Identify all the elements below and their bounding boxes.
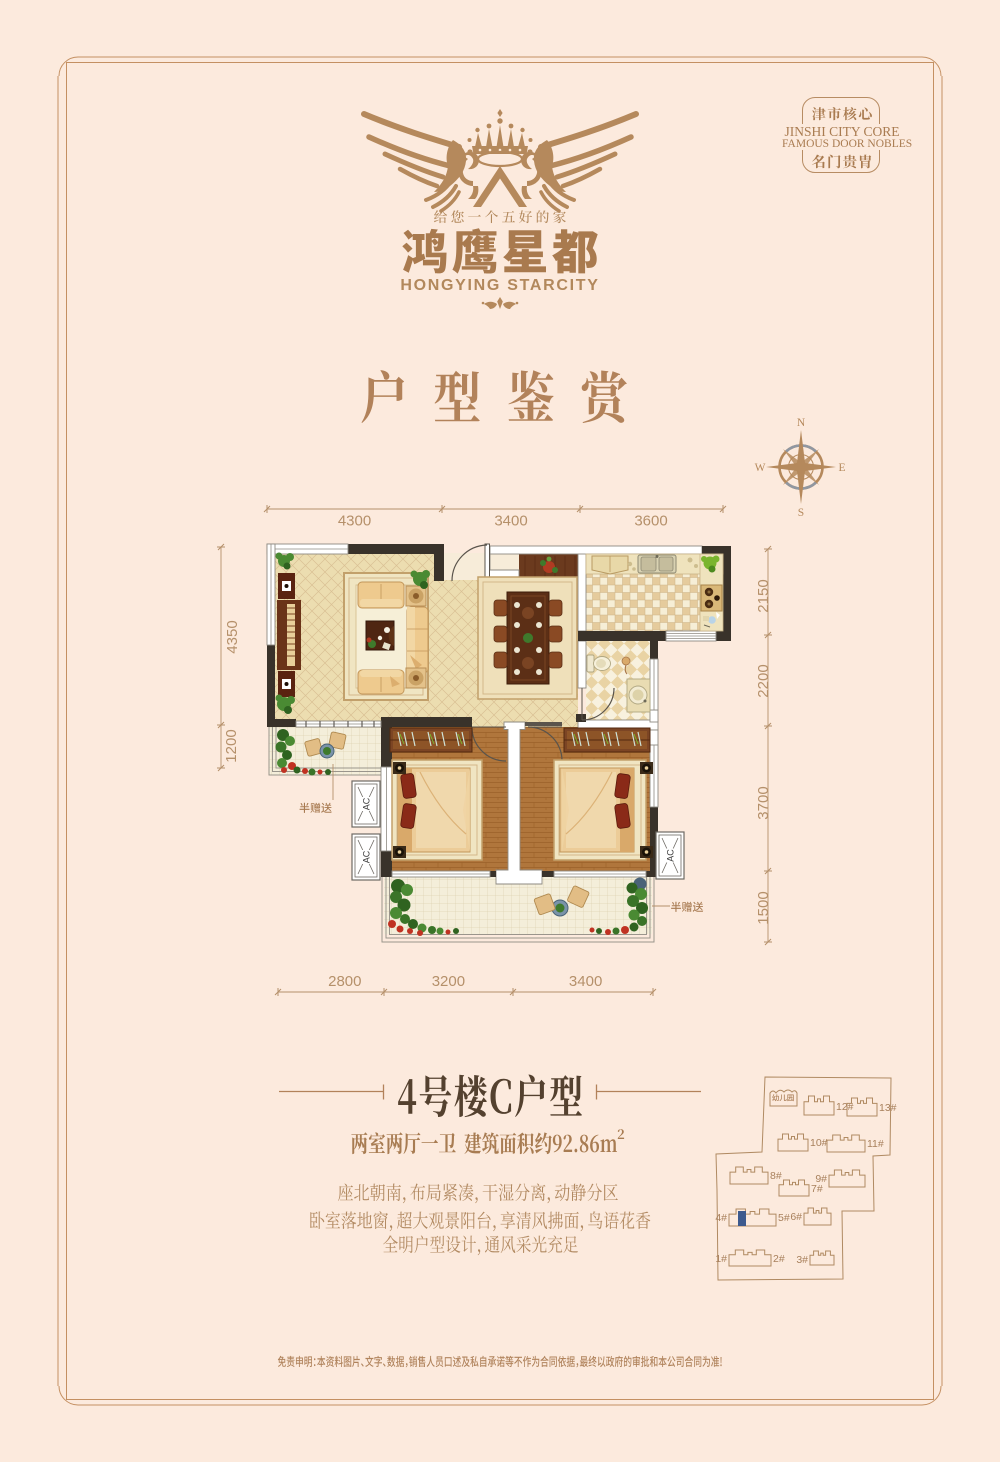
svg-text:3400: 3400	[494, 513, 527, 530]
svg-text:S: S	[798, 507, 804, 519]
svg-text:E: E	[838, 462, 845, 474]
svg-text:W: W	[755, 462, 766, 474]
svg-text:2150: 2150	[755, 579, 772, 612]
svg-text:3600: 3600	[634, 513, 667, 530]
svg-text:2200: 2200	[755, 664, 772, 697]
svg-text:2800: 2800	[328, 973, 361, 990]
svg-text:4350: 4350	[224, 620, 241, 653]
svg-text:3700: 3700	[755, 786, 772, 819]
svg-text:4300: 4300	[338, 513, 371, 530]
svg-text:N: N	[797, 417, 806, 429]
svg-text:1200: 1200	[223, 729, 240, 762]
svg-text:1500: 1500	[755, 891, 772, 924]
svg-text:3200: 3200	[432, 973, 465, 990]
svg-text:3400: 3400	[569, 973, 602, 990]
